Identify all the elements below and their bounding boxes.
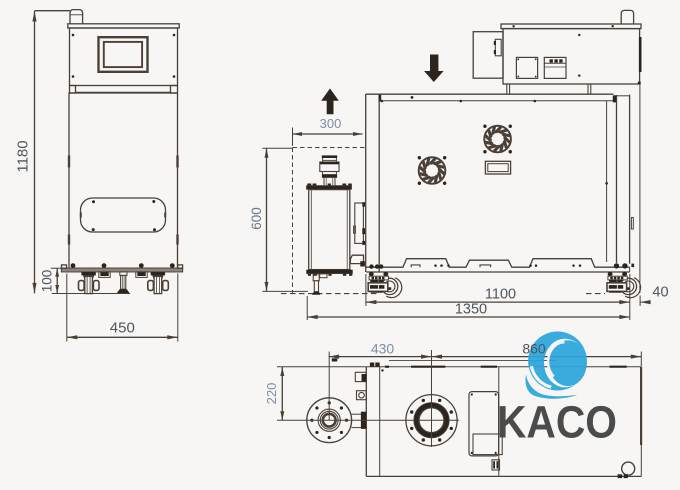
svg-text:1100: 1100: [485, 287, 516, 303]
svg-text:600: 600: [249, 207, 264, 230]
svg-text:300: 300: [320, 116, 342, 131]
svg-text:40: 40: [652, 285, 668, 301]
svg-text:100: 100: [40, 270, 55, 293]
svg-text:450: 450: [110, 320, 135, 337]
svg-text:1180: 1180: [15, 140, 32, 172]
svg-text:860: 860: [522, 340, 546, 356]
svg-text:430: 430: [371, 340, 395, 356]
svg-text:1350: 1350: [455, 302, 487, 318]
svg-text:KACO: KACO: [497, 397, 617, 448]
svg-text:220: 220: [264, 383, 279, 405]
